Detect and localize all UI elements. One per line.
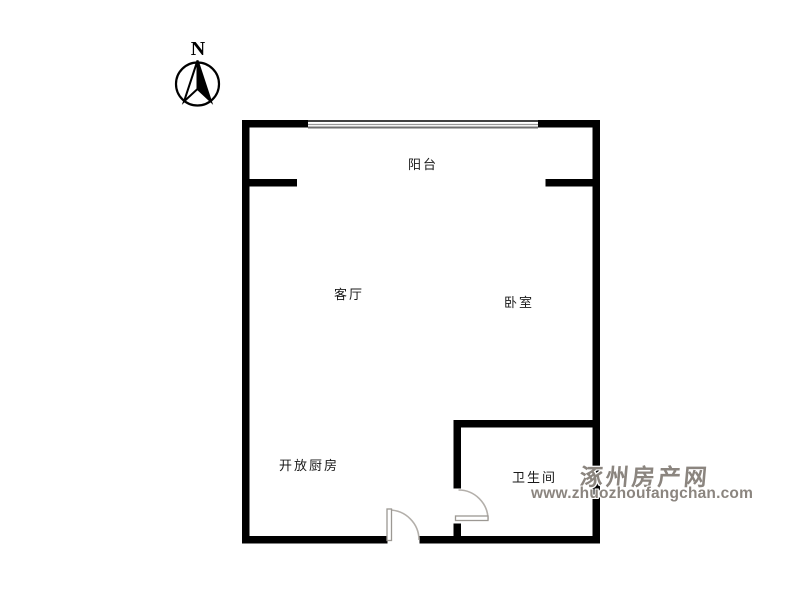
wall-bathroom-left-lower [454, 524, 462, 544]
wall-balcony-stub-right [546, 179, 593, 187]
room-label-living-room: 客厅 [334, 284, 364, 303]
door-entrance-leaf [387, 509, 392, 541]
room-label-balcony: 阳台 [408, 154, 438, 173]
wall-bathroom-top [454, 420, 601, 428]
room-label-bathroom: 卫生间 [512, 467, 557, 486]
wall-balcony-stub-left [242, 179, 297, 187]
compass-north-label: N [186, 38, 210, 61]
door-bathroom [456, 490, 489, 521]
wall-bottom-left [242, 536, 388, 544]
room-label-open-kitchen: 开放厨房 [279, 455, 339, 474]
wall-top-right [538, 120, 600, 128]
window-balcony [308, 120, 538, 129]
compass-icon [176, 61, 219, 106]
watermark-site-url: www.zhuozhoufangchan.com [531, 485, 753, 503]
room-label-bedroom: 卧室 [504, 292, 534, 311]
floor-plan-canvas: N 阳台 客厅 卧室 开放厨房 卫生间 涿州房产网 www.zhuozhoufa… [0, 0, 800, 600]
floor-plan-drawing [0, 0, 800, 600]
door-entrance [387, 509, 419, 541]
wall-top-left [242, 120, 308, 128]
wall-bottom-right [420, 536, 601, 544]
door-bathroom-leaf [456, 516, 489, 521]
wall-bathroom-left-upper [454, 420, 462, 489]
